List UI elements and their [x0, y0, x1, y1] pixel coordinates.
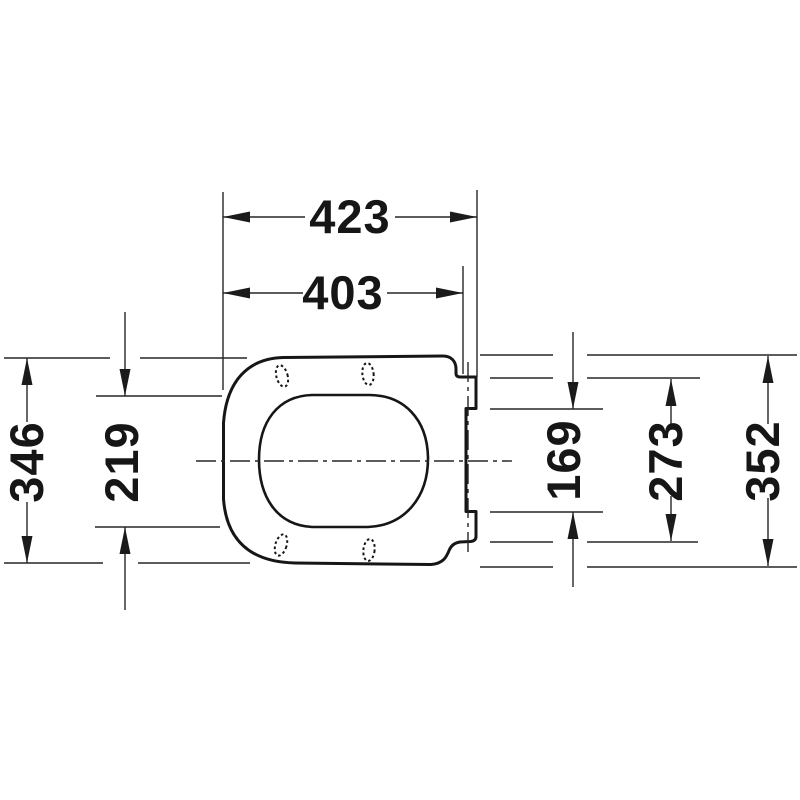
arrowhead-up — [120, 527, 131, 554]
seat-bumper-bottom-right — [362, 538, 375, 561]
arrowhead-up — [568, 512, 579, 539]
dimension-label-hinge-outer-span: 273 — [639, 420, 692, 501]
arrowhead-down — [568, 382, 579, 409]
dimension-drawing-canvas: 423 403 346 — [0, 0, 800, 800]
dimension-label-overall-length: 423 — [309, 190, 390, 243]
arrowhead-right — [450, 212, 477, 223]
seat-bumper-bottom-left — [272, 533, 289, 557]
arrowhead-up — [22, 358, 33, 385]
arrowhead-up — [666, 379, 677, 406]
arrowhead-down — [763, 539, 774, 566]
arrowhead-down — [120, 369, 131, 396]
seat-bumper-top-right — [361, 362, 374, 385]
arrowhead-left — [223, 288, 250, 299]
dimension-label-length-to-hinge: 403 — [302, 266, 383, 319]
dimension-hinge-outer-span: 273 — [490, 378, 700, 542]
dimension-label-seat-width: 346 — [0, 421, 53, 502]
arrowhead-right — [436, 288, 463, 299]
arrowhead-up — [763, 356, 774, 383]
arrowhead-left — [223, 212, 250, 223]
seat-outline — [224, 356, 477, 565]
dimension-label-opening-width: 219 — [95, 421, 148, 502]
dimension-label-hinge-inner-span: 169 — [537, 419, 590, 500]
arrowhead-down — [666, 514, 677, 541]
seat-bumper-top-left — [274, 364, 291, 388]
toilet-seat-dimension-drawing: 423 403 346 — [0, 0, 800, 800]
arrowhead-down — [22, 536, 33, 563]
dimension-hinge-inner-span: 169 — [490, 332, 603, 587]
seat-body — [196, 356, 512, 565]
dimension-label-hinge-overall-span: 352 — [736, 420, 789, 501]
